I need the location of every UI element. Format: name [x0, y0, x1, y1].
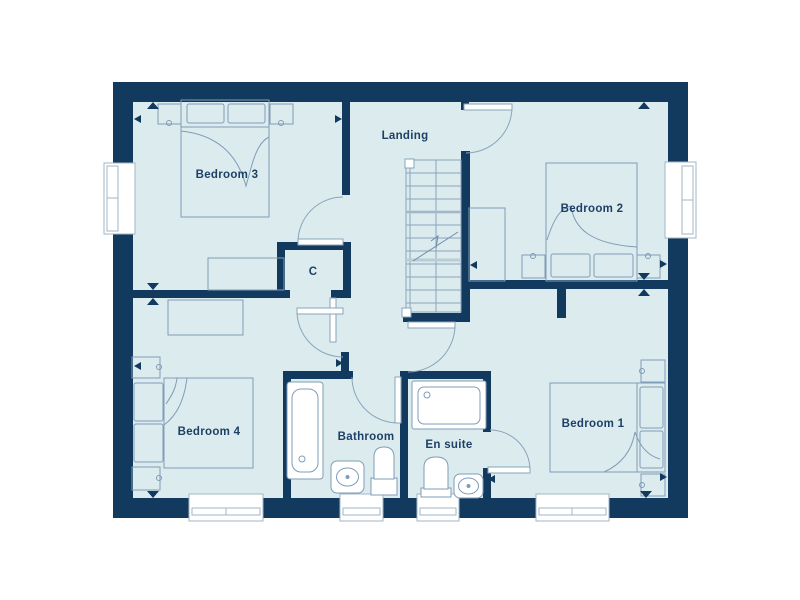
room-label-landing: Landing — [382, 130, 429, 142]
wall-ensuite-right-stub — [483, 468, 491, 498]
wall-closet-bottom-right-stub — [331, 290, 351, 298]
wall-closet-top — [277, 242, 351, 250]
room-label-bedroom1: Bedroom 1 — [562, 418, 625, 430]
room-label-bedroom2: Bedroom 2 — [561, 203, 624, 215]
wall-ensuite-right — [483, 371, 491, 432]
wall-stairs-right — [461, 151, 470, 322]
wall-exterior-left — [113, 82, 133, 518]
wall-bedroom3-right — [342, 102, 350, 195]
room-label-bathroom: Bathroom — [338, 431, 395, 443]
wall-exterior-right — [668, 82, 688, 518]
room-label-bedroom4: Bedroom 4 — [178, 426, 241, 438]
floor-plan: Bedroom 3 Landing Bedroom 2 C Bedroom 4 … — [0, 0, 800, 600]
room-label-ensuite: En suite — [425, 439, 472, 451]
wall-closet-bottom-left-stub — [277, 290, 290, 298]
room-label-bedroom3: Bedroom 3 — [196, 169, 259, 181]
wall-stub-top-landing — [461, 102, 469, 110]
wall-bedroom3-bedroom4 — [133, 290, 290, 298]
wall-bathroom-top — [283, 371, 353, 379]
wall-stairs-bottom — [403, 313, 467, 322]
wall-exterior-bottom — [113, 498, 688, 518]
wall-exterior-top — [113, 82, 688, 102]
wall-ensuite-top — [400, 371, 491, 379]
wall-bedroom2-bedroom1 — [461, 280, 668, 289]
wall-bathroom-left — [283, 371, 291, 498]
wall-ensuite-left — [400, 371, 408, 498]
room-label-closet: C — [309, 266, 318, 278]
wall-stub-bedroom1 — [557, 289, 566, 318]
